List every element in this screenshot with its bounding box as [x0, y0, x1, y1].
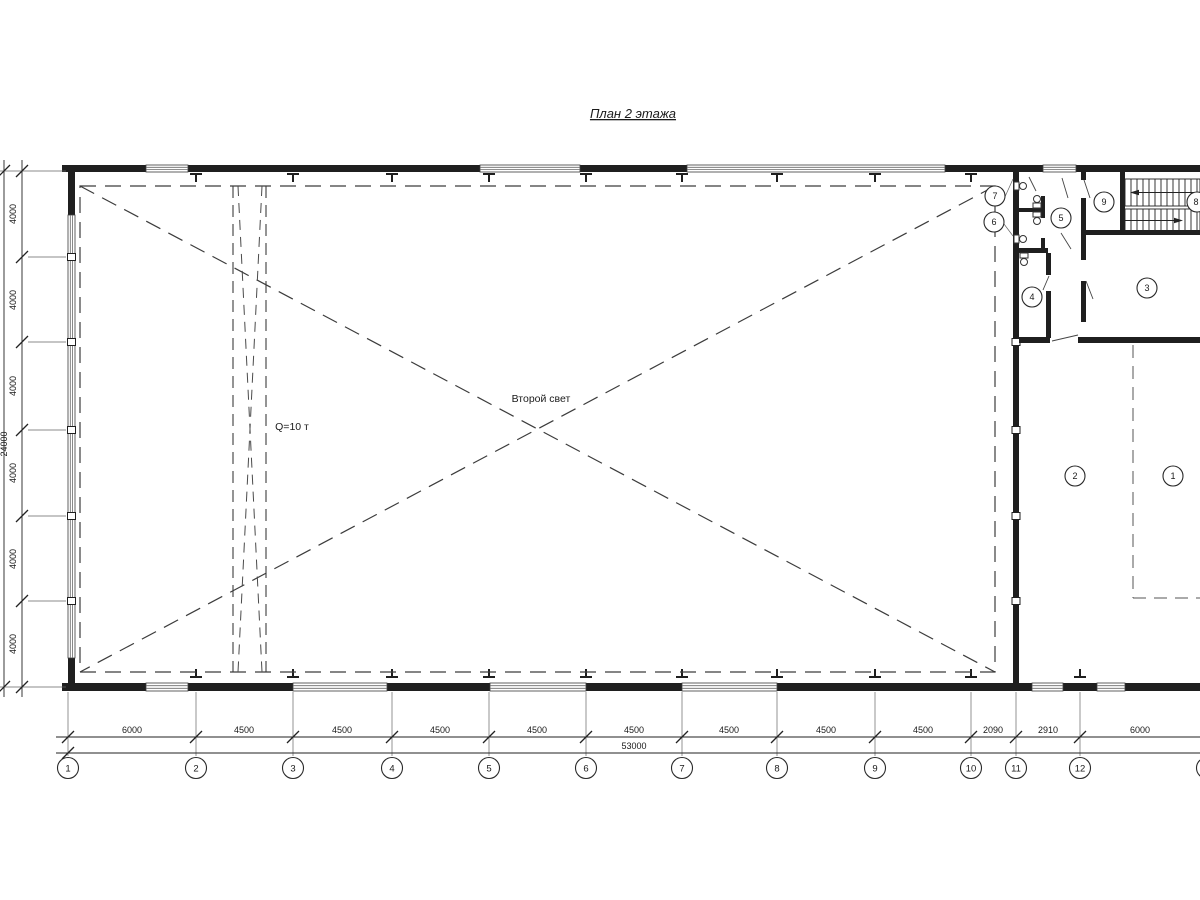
window: [146, 165, 188, 172]
door-leaf: [1043, 276, 1049, 290]
dim-label: 4500: [624, 725, 644, 735]
dim-total-label: 24000: [0, 431, 9, 456]
window-band-left: [68, 215, 75, 658]
dim-label: 4500: [913, 725, 933, 735]
toilet-icon: [1033, 196, 1041, 209]
wall-rooms-divider: [1019, 337, 1050, 343]
drawing-sheet: План 2 этажа: [0, 0, 1200, 900]
extension-lines-left: [0, 171, 66, 687]
axis-number: 4: [389, 764, 394, 775]
door-leaf: [1062, 178, 1068, 198]
dim-label: 4000: [8, 463, 18, 483]
room-tag: 3: [1137, 278, 1157, 298]
dim-total-label: 53000: [621, 741, 646, 751]
dim-label: 4000: [8, 634, 18, 654]
toilet-icon: [1014, 182, 1027, 190]
wall-corridor: [1081, 337, 1086, 343]
dim-label: 4500: [816, 725, 836, 735]
crane-capacity-label: Q=10 т: [275, 421, 309, 433]
window: [1032, 683, 1063, 691]
axis-number: 8: [774, 764, 779, 775]
hall-opening: Второй свет: [80, 186, 995, 672]
room-tag: 9: [1094, 192, 1114, 212]
axis-bubbles: 1 2 3 4 5 6 7 8 9 10 11 12: [58, 758, 1200, 779]
room-number: 7: [992, 191, 997, 201]
axis-number: 5: [486, 764, 491, 775]
windows: [68, 165, 1125, 691]
dimensions-bottom: 6000 4500 4500 4500 4500 4500 4500 4500 …: [56, 692, 1200, 759]
room-number: 4: [1029, 292, 1034, 302]
second-light-label: Второй свет: [512, 393, 571, 405]
window: [480, 165, 580, 172]
room-number: 8: [1193, 197, 1198, 207]
dim-label: 4500: [719, 725, 739, 735]
room-number: 3: [1144, 283, 1149, 293]
dim-label: 4000: [8, 549, 18, 569]
stair-arrowhead-down: [1174, 218, 1183, 223]
axis-number: 10: [966, 764, 977, 775]
room-tag: 1: [1163, 466, 1183, 486]
toilet-icon: [1014, 235, 1027, 243]
door-leaf: [1029, 177, 1036, 191]
window: [682, 683, 777, 691]
room-tag: 4: [1022, 287, 1042, 307]
dim-label: 4000: [8, 204, 18, 224]
extension-lines-bottom: [68, 692, 1080, 756]
axis-number: 9: [872, 764, 877, 775]
axis-number: 12: [1075, 764, 1086, 775]
wall-wc-partition: [1041, 196, 1045, 218]
wall-corridor: [1081, 172, 1086, 180]
window: [1043, 165, 1076, 172]
dim-label: 4500: [527, 725, 547, 735]
window: [490, 683, 586, 691]
room-tag: 2: [1065, 466, 1085, 486]
room-tag: 5: [1051, 208, 1071, 228]
axis-number: 6: [583, 764, 588, 775]
dim-label: 4000: [8, 376, 18, 396]
window: [1097, 683, 1125, 691]
wall-room4: [1046, 291, 1051, 338]
axis-number: 2: [193, 764, 198, 775]
toilet-icon: [1033, 212, 1041, 225]
door-leaf: [1084, 180, 1090, 198]
room-tag-leaders: [1004, 179, 1013, 236]
dim-label: 4500: [234, 725, 254, 735]
toilet-icon: [1020, 253, 1028, 266]
room-tag: 7: [985, 186, 1005, 206]
door-leaf: [1052, 335, 1078, 341]
room-number: 1: [1170, 471, 1175, 481]
wall-stair: [1120, 172, 1125, 230]
door-leaf: [1086, 281, 1093, 299]
room-number: 9: [1101, 197, 1106, 207]
room-number: 2: [1072, 471, 1077, 481]
crane-runway: Q=10 т: [233, 186, 309, 672]
window: [687, 165, 945, 172]
dim-label: 2090: [983, 725, 1003, 735]
room-number: 6: [991, 217, 996, 227]
dim-label: 4500: [332, 725, 352, 735]
column-row-bottom: [190, 669, 1086, 677]
wall-corridor: [1081, 281, 1086, 322]
crane-cross: [238, 186, 262, 672]
axis-number: 7: [679, 764, 684, 775]
dim-label: 6000: [1130, 725, 1150, 735]
window: [293, 683, 387, 691]
axis-number: 11: [1011, 764, 1021, 775]
axis-number: 3: [290, 764, 295, 775]
wall-bottom: [62, 683, 1200, 691]
window: [146, 683, 188, 691]
wall-wc-partition: [1013, 208, 1044, 212]
interior-walls: [1013, 172, 1200, 598]
axis-bubble: [1197, 758, 1200, 779]
dim-ticks-left-total: [0, 165, 10, 693]
opening-diagonals: [80, 186, 995, 672]
dim-label: 6000: [122, 725, 142, 735]
wall-room4: [1046, 253, 1051, 275]
dim-label: 2910: [1038, 725, 1058, 735]
wall-top: [62, 165, 1200, 172]
dim-label: 4000: [8, 290, 18, 310]
axis-number: 1: [65, 764, 70, 775]
floor-plan-drawing: План 2 этажа: [0, 0, 1200, 900]
title-block: План 2 этажа: [590, 106, 676, 121]
dim-label: 4500: [430, 725, 450, 735]
dimensions-left: 4000 4000 4000 4000 4000 4000 24000: [0, 160, 66, 697]
room-tag: 6: [984, 212, 1004, 232]
column-row-top: [190, 174, 977, 182]
wall-corridor: [1081, 198, 1086, 260]
room-number: 5: [1058, 213, 1063, 223]
wall-rooms-divider: [1078, 337, 1200, 343]
column-marks: [68, 174, 1087, 677]
wall-wc-partition: [1041, 238, 1045, 250]
drawing-title: План 2 этажа: [590, 106, 676, 121]
door-leaf: [1061, 233, 1071, 249]
